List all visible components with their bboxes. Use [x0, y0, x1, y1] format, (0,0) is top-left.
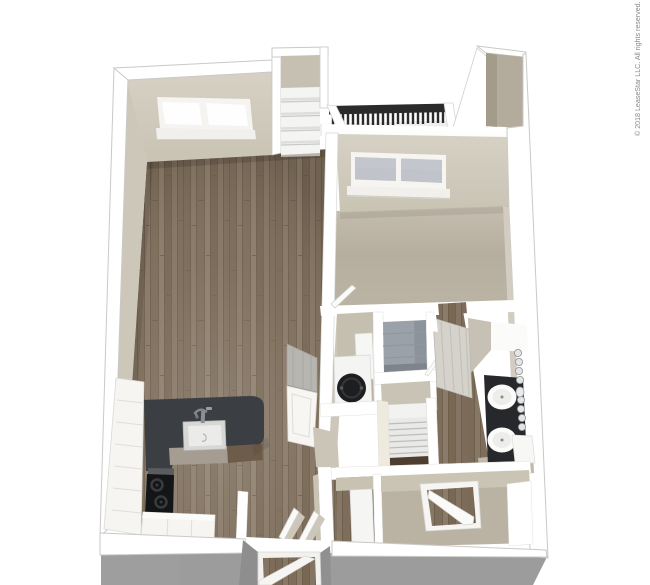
svg-text:© 2018 LeaseStar LLC. All righ: © 2018 LeaseStar LLC. All rights reserve…	[634, 1, 642, 136]
